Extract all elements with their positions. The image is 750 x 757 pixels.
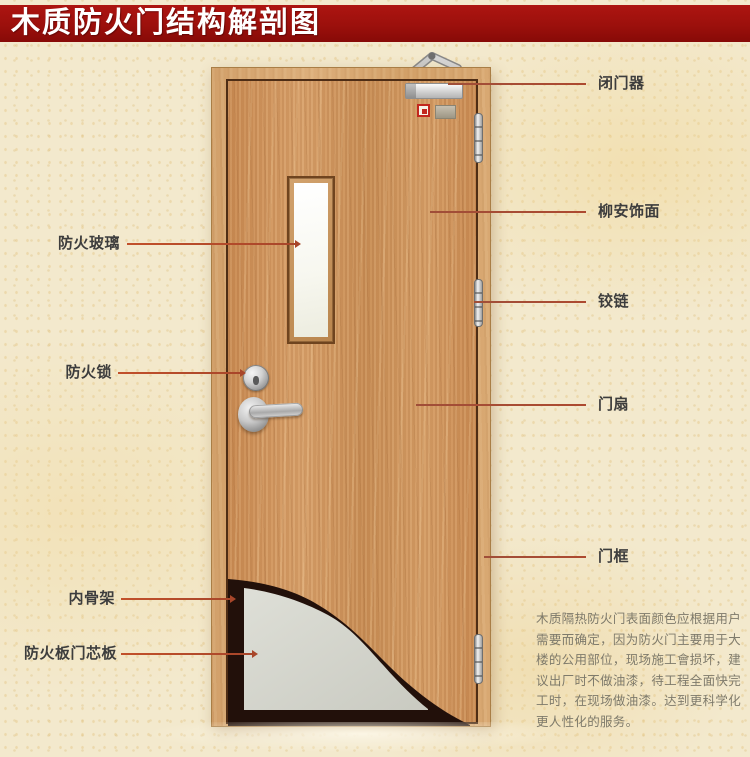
arrowhead-icon (295, 240, 301, 248)
label-core-board: 防火板门芯板 (5, 646, 117, 662)
hinge-bottom (474, 634, 483, 684)
door-closer-body (405, 83, 463, 99)
closer-name-plate (435, 105, 456, 119)
hinge-top (474, 113, 483, 163)
fire-lock-cylinder (243, 365, 269, 391)
closer-red-dot (422, 109, 427, 114)
closer-red-label (417, 104, 430, 117)
leader-line-core-board (121, 653, 253, 655)
fire-glass-window (287, 176, 335, 344)
arrowhead-icon (252, 650, 258, 658)
glass-pane (294, 183, 328, 337)
floor-light-band (150, 722, 570, 752)
page-title: 木质防火门结构解剖图 (0, 5, 750, 42)
title-banner: 木质防火门结构解剖图 (0, 5, 750, 42)
label-door-leaf: 门扇 (598, 397, 629, 413)
door-leaf (226, 79, 478, 724)
keyhole-icon (253, 376, 259, 385)
door-handle-lever (249, 403, 304, 419)
leader-line-door-leaf (416, 404, 586, 406)
description-text: 木质隔热防火门表面颜色应根据用户需要而确定，因为防火门主要用于大楼的公用部位，现… (536, 609, 741, 732)
cutaway-section (228, 563, 480, 726)
label-fire-lock: 防火锁 (0, 365, 112, 381)
leader-line-door-frame (484, 556, 586, 558)
arrowhead-icon (230, 595, 236, 603)
core-board-shape (244, 588, 428, 710)
leader-line-hinge (474, 301, 586, 303)
label-fire-glass: 防火玻璃 (8, 236, 120, 252)
leader-line-fire-lock (118, 372, 241, 374)
label-hinge: 铰链 (598, 294, 629, 310)
leader-line-fire-glass (127, 243, 296, 245)
label-door-closer: 闭门器 (598, 76, 645, 92)
label-door-frame: 门框 (598, 549, 629, 565)
door-frame (211, 67, 491, 727)
diagram-root: 木质防火门结构解剖图 (0, 0, 750, 757)
hinge-middle (474, 279, 483, 327)
arrowhead-icon (240, 369, 246, 377)
label-inner-skeleton: 内骨架 (3, 591, 115, 607)
label-veneer: 柳安饰面 (598, 204, 660, 220)
leader-line-door-closer (448, 83, 586, 85)
door-closer-cap (406, 84, 416, 98)
leader-line-veneer (430, 211, 586, 213)
leader-line-inner-skeleton (121, 598, 231, 600)
